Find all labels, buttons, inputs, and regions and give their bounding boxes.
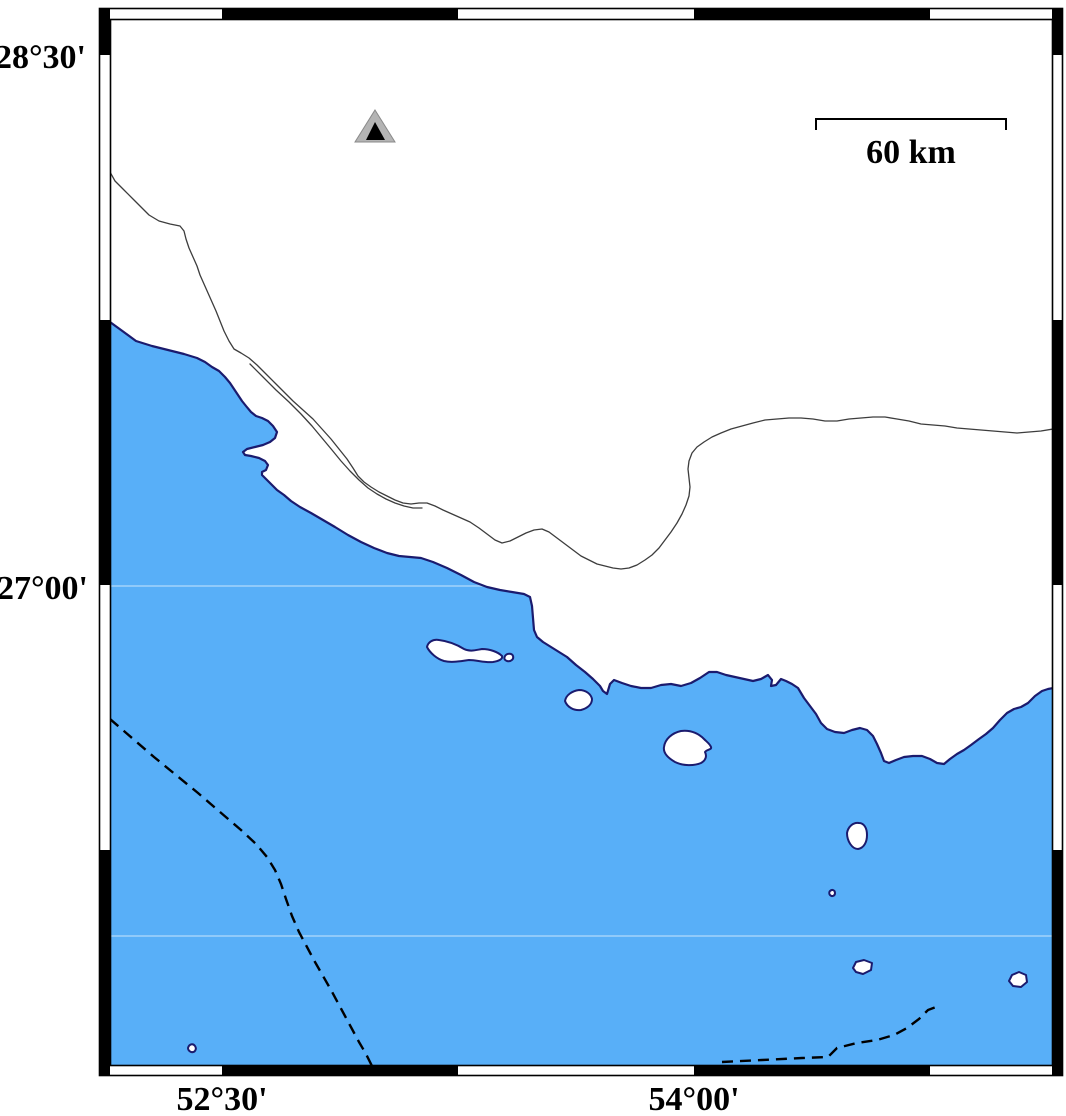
map-canvas: 60 km 28°30' 27°00' 52°30' 54°0 <box>0 0 1066 1116</box>
frame-tick <box>99 320 110 585</box>
frame-tick <box>222 1065 458 1076</box>
frame-tick <box>1052 320 1063 585</box>
lon-label-54-00: 54°00' <box>648 1081 739 1116</box>
frame-tick <box>222 8 458 19</box>
frame-tick <box>694 8 930 19</box>
lat-label-28-30: 28°30' <box>0 39 86 76</box>
island-east-dot <box>829 890 835 896</box>
frame-tick <box>1052 8 1063 55</box>
frame-tick <box>99 8 110 55</box>
island-small-middle <box>565 690 592 710</box>
frame-tick <box>1052 850 1063 1076</box>
island-east-round <box>847 823 867 849</box>
scale-bar-label: 60 km <box>866 134 956 171</box>
island-southeast-corner <box>1009 972 1027 987</box>
lat-label-27-00: 27°00' <box>0 570 88 607</box>
island-south-small <box>853 960 872 974</box>
island-southwest-tiny <box>188 1044 196 1052</box>
frame-tick <box>99 850 110 1076</box>
map-figure: 60 km 28°30' 27°00' 52°30' 54°0 <box>0 0 1066 1116</box>
lon-label-52-30: 52°30' <box>176 1081 267 1116</box>
island-islet-west <box>504 654 513 661</box>
frame-tick <box>694 1065 930 1076</box>
